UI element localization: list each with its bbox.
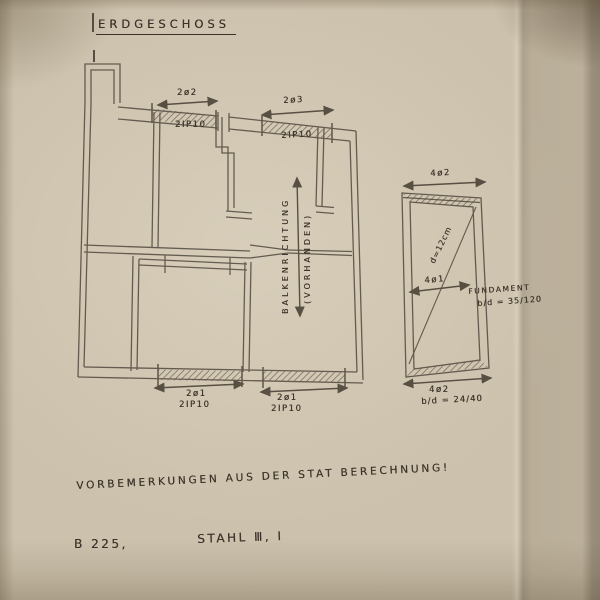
beam-direction-label: BALKENRICHTUNG xyxy=(281,198,290,314)
foundation-mid-bars-label: 4ø1 xyxy=(424,274,445,286)
foundation-bottom-arrow xyxy=(404,378,491,384)
concrete-grade-label: B 225, xyxy=(74,537,128,551)
dimension-arrow-top-left xyxy=(158,101,217,105)
ground-floor-plan xyxy=(78,64,480,392)
foundation-bottom-hatch xyxy=(407,360,488,376)
lintel-hatch-bands xyxy=(152,109,480,384)
wall-protrusion xyxy=(85,64,120,104)
beam-label-top-right-bars: 2ø3 xyxy=(283,95,304,106)
foundation-top-bars-label: 4ø2 xyxy=(430,168,451,179)
beam-label-bottom-mid-profile: 2IP10 xyxy=(271,404,302,414)
beam-label-top-right-profile: 2IP10 xyxy=(281,129,313,141)
beam-direction-note: (VORHANDEN) xyxy=(303,213,312,304)
beam-label-top-left-bars: 2ø2 xyxy=(177,88,198,98)
dimension-arrow-bottom-mid xyxy=(261,388,347,392)
photographed-drawing: ERDGESCHOSS 2ø2 2IP10 2ø3 2IP10 2ø1 2IP1… xyxy=(0,0,600,600)
dimension-arrow-top-right xyxy=(262,110,333,115)
page-title: ERDGESCHOSS xyxy=(96,17,236,35)
foundation-bottom-bars-label: 4ø2 xyxy=(429,385,450,395)
beam-label-bottom-left-profile: 2IP10 xyxy=(179,400,210,410)
foundation-top-arrow xyxy=(404,182,485,186)
dimension-arrow-bottom-left xyxy=(155,384,243,388)
beam-label-bottom-mid-bars: 2ø1 xyxy=(277,393,298,403)
foundation-mid-arrow xyxy=(410,285,469,292)
foundation-detail xyxy=(402,182,491,384)
outer-walls xyxy=(78,101,363,383)
wall-junction-ticks xyxy=(152,103,345,389)
title-start-tick xyxy=(92,13,94,32)
beam-label-top-left-profile: 2IP10 xyxy=(175,120,206,130)
stray-mark xyxy=(93,50,95,62)
beam-label-bottom-left-bars: 2ø1 xyxy=(186,389,207,399)
beam-direction-arrow xyxy=(297,178,300,316)
